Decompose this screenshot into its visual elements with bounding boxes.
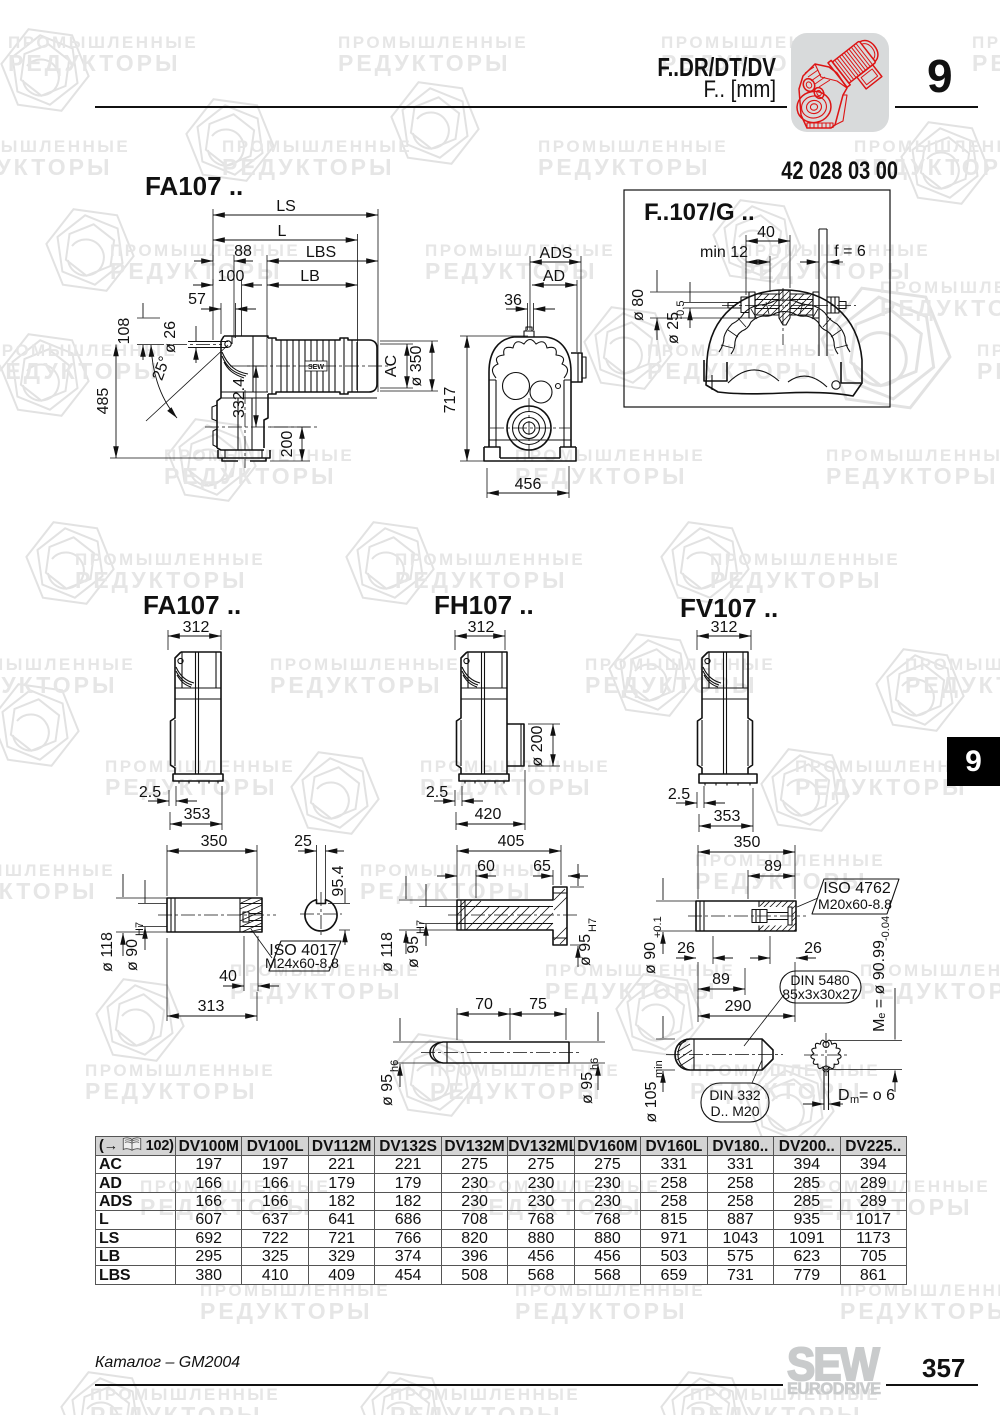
svg-text:ø 200: ø 200	[529, 725, 546, 766]
svg-text:m: m	[850, 1094, 859, 1106]
svg-text:290: 290	[725, 998, 752, 1015]
svg-text:2.5: 2.5	[668, 786, 690, 803]
svg-text:36: 36	[504, 292, 522, 309]
svg-text:26: 26	[804, 940, 822, 957]
svg-text:40: 40	[757, 224, 775, 241]
svg-text:332.4: 332.4	[231, 378, 248, 418]
svg-text:-0.5: -0.5	[675, 301, 687, 320]
svg-text:ø 90: ø 90	[124, 939, 141, 971]
svg-text:95.4: 95.4	[330, 865, 347, 896]
svg-text:min 12: min 12	[700, 244, 748, 261]
svg-text:89: 89	[712, 971, 730, 988]
svg-text:456: 456	[515, 476, 542, 493]
svg-text:65: 65	[533, 858, 551, 875]
svg-text:108: 108	[116, 318, 133, 345]
svg-text:57: 57	[188, 291, 206, 308]
svg-text:FA107 ..: FA107 ..	[145, 171, 243, 201]
svg-text:ø 95: ø 95	[579, 1072, 596, 1104]
svg-text:DIN 332: DIN 332	[709, 1087, 761, 1103]
svg-text:ø 95: ø 95	[379, 1074, 396, 1106]
svg-text:2.5: 2.5	[426, 784, 448, 801]
svg-text:350: 350	[201, 833, 228, 850]
svg-text:70: 70	[475, 996, 493, 1013]
svg-text:ø 118: ø 118	[379, 932, 396, 972]
svg-text:min: min	[653, 1060, 665, 1078]
svg-text:LBS: LBS	[306, 244, 336, 261]
svg-text:h6: h6	[589, 1058, 601, 1070]
svg-text:-0.04: -0.04	[880, 916, 892, 941]
svg-text:60: 60	[477, 858, 495, 875]
svg-text:f = 6: f = 6	[834, 243, 866, 260]
svg-text:L: L	[278, 223, 287, 240]
svg-text:312: 312	[711, 619, 738, 636]
svg-text:75: 75	[529, 996, 547, 1013]
svg-text:26: 26	[677, 940, 695, 957]
svg-text:200: 200	[279, 431, 296, 458]
svg-text:AD: AD	[543, 268, 565, 285]
svg-text:25°: 25°	[150, 354, 174, 383]
svg-text:ø 95: ø 95	[577, 934, 594, 966]
svg-text:h6: h6	[389, 1060, 401, 1072]
svg-text:= o 6: = o 6	[859, 1087, 895, 1104]
svg-text:ø 105: ø 105	[643, 1081, 660, 1122]
svg-text:Mₑ = ø 90.99: Mₑ = ø 90.99	[871, 940, 888, 1032]
svg-text:88: 88	[234, 243, 252, 260]
svg-text:350: 350	[734, 834, 761, 851]
svg-text:85x3x30x27: 85x3x30x27	[782, 986, 858, 1002]
svg-text:ø 80: ø 80	[630, 289, 647, 321]
svg-text:AC: AC	[383, 355, 400, 377]
svg-text:100: 100	[218, 268, 245, 285]
svg-text:ø 118: ø 118	[99, 932, 116, 972]
svg-text:ø 95: ø 95	[405, 936, 422, 968]
svg-text:M24x60-8.8: M24x60-8.8	[265, 955, 339, 971]
svg-text:ø 90: ø 90	[642, 942, 659, 974]
svg-text:FH107 ..: FH107 ..	[434, 590, 534, 620]
svg-text:405: 405	[498, 833, 525, 850]
svg-text:312: 312	[468, 619, 495, 636]
svg-text:717: 717	[442, 387, 459, 414]
svg-text:353: 353	[184, 806, 211, 823]
svg-text:H7: H7	[134, 922, 146, 936]
svg-text:FA107 ..: FA107 ..	[143, 590, 241, 620]
svg-text:F..107/G ..: F..107/G ..	[644, 199, 755, 226]
svg-text:LS: LS	[276, 198, 296, 215]
svg-text:H7: H7	[415, 920, 427, 934]
svg-text:D.. M20: D.. M20	[710, 1103, 759, 1119]
svg-text:420: 420	[475, 806, 502, 823]
svg-text:2.5: 2.5	[139, 784, 161, 801]
svg-text:+0.1: +0.1	[652, 916, 664, 938]
svg-text:312: 312	[183, 619, 210, 636]
svg-text:ISO 4762: ISO 4762	[823, 880, 891, 897]
svg-text:353: 353	[714, 808, 741, 825]
svg-text:ADS: ADS	[540, 245, 573, 262]
svg-text:25: 25	[294, 833, 312, 850]
svg-text:485: 485	[95, 388, 112, 415]
svg-text:ø 26: ø 26	[162, 321, 179, 353]
svg-text:D: D	[838, 1087, 850, 1104]
svg-text:40: 40	[219, 968, 237, 985]
svg-text:ø 350: ø 350	[408, 345, 425, 386]
svg-text:M20x60-8.8: M20x60-8.8	[818, 896, 892, 912]
svg-text:SEW: SEW	[308, 364, 324, 371]
svg-text:H7: H7	[587, 918, 599, 932]
svg-text:LB: LB	[300, 268, 320, 285]
svg-text:313: 313	[198, 998, 225, 1015]
svg-text:89: 89	[764, 858, 782, 875]
